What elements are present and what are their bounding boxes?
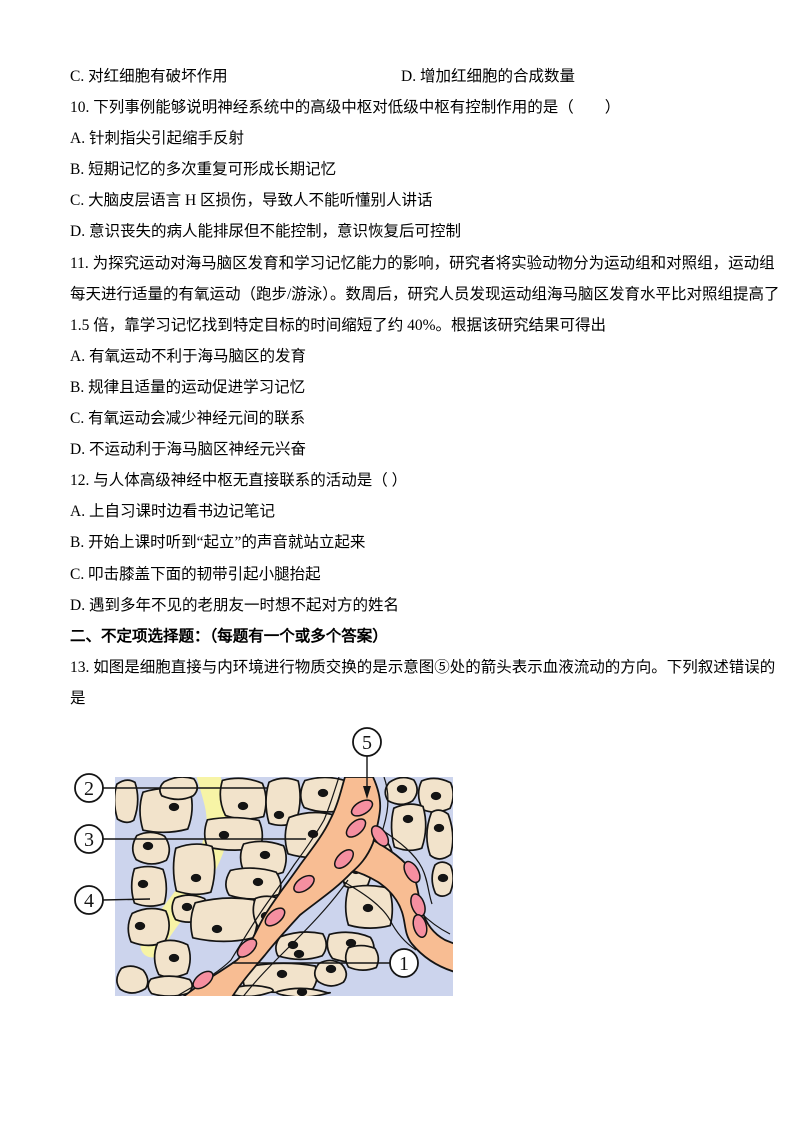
tissue-cell [128,909,169,946]
cell-nucleus [135,922,145,930]
text-line-9: 1.5 倍，靠学习记忆找到特定目标的时间缩短了约 40%。根据该研究结果可得出 [70,310,740,341]
cell-nucleus [274,811,284,819]
label-2: 2 [84,778,94,800]
cell-environment-diagram: 2 3 4 1 5 [60,720,500,1020]
text-line-7: 11. 为探究运动对海马脑区发育和学习记忆能力的影响，研究者将实验动物分为运动组… [70,248,740,279]
text-line-4: B. 短期记忆的多次重复可形成长期记忆 [70,154,740,185]
cell-nucleus [318,789,328,797]
option-d: D. 增加红细胞的合成数量 [401,61,575,92]
tissue-cell [148,976,192,996]
tissue-cell [346,946,379,971]
cell-nucleus [169,803,179,811]
cell-nucleus [182,903,192,911]
text-line-16: B. 开始上课时听到“起立”的声音就站立起来 [70,527,740,558]
tissue-cell [117,966,148,993]
cell-nucleus [253,878,263,886]
tissue-cell [392,804,426,850]
cell-nucleus [212,925,222,933]
cell-nucleus [169,954,179,962]
tissue-cell [132,867,167,907]
tissue-cell [220,778,266,819]
tissue-cell [191,898,257,941]
question-text-block: C. 对红细胞有破坏作用D. 增加红细胞的合成数量10. 下列事例能够说明神经系… [70,61,740,714]
label-4: 4 [84,890,94,912]
cell-nucleus [277,970,287,978]
cell-nucleus [438,874,448,882]
tissue-cell [427,810,453,859]
text-line-10: A. 有氧运动不利于海马脑区的发育 [70,341,740,372]
label-line-4 [103,899,150,900]
cell-nucleus [326,965,336,973]
cell-nucleus [363,904,373,912]
text-line-19: 二、不定项选择题：（每题有一个或多个答案） [70,621,740,652]
cell-nucleus [219,831,229,839]
text-line-5: C. 大脑皮层语言 H 区损伤，导致人不能听懂别人讲话 [70,185,740,216]
text-line-14: 12. 与人体高级神经中枢无直接联系的活动是（ ） [70,465,740,496]
cell-nucleus [294,950,304,958]
exam-page: { "document": { "lines": [ {"left":"C. 对… [0,0,794,1123]
cell-nucleus [434,824,444,832]
cell-nucleus [138,880,148,888]
label-3: 3 [84,829,94,851]
option-c: C. 对红细胞有破坏作用 [70,68,228,85]
cell-nucleus [288,941,298,949]
diagram-svg: 2 3 4 1 5 [60,720,500,1020]
cell-nucleus [403,815,413,823]
cell-nucleus [260,851,270,859]
tissue-cell [174,844,215,894]
text-line-8: 每天进行适量的有氧运动（跑步/游泳）。数周后，研究人员发现运动组海马脑区发育水平… [70,279,740,310]
cell-nucleus [191,874,201,882]
cell-nucleus [431,792,441,800]
cell-nucleus [238,802,248,810]
text-line-2: 10. 下列事例能够说明神经系统中的高级中枢对低级中枢有控制作用的是（ ） [70,92,740,123]
text-line-3: A. 针刺指尖引起缩手反射 [70,123,740,154]
text-line-12: C. 有氧运动会减少神经元间的联系 [70,403,740,434]
text-line-21: 是 [70,683,740,714]
tissue-cell [315,960,347,986]
text-line-18: D. 遇到多年不见的老朋友一时想不起对方的姓名 [70,590,740,621]
text-line-6: D. 意识丧失的病人能排尿但不能控制，意识恢复后可控制 [70,216,740,247]
text-line-1: C. 对红细胞有破坏作用D. 增加红细胞的合成数量 [70,61,740,92]
tissue-cell [115,780,138,822]
cell-nucleus [297,988,307,996]
text-line-11: B. 规律且适量的运动促进学习记忆 [70,372,740,403]
text-line-15: A. 上自习课时边看书边记笔记 [70,496,740,527]
text-line-20: 13. 如图是细胞直接与内环境进行物质交换的是示意图⑤处的箭头表示血液流动的方向… [70,652,740,683]
text-line-17: C. 叩击膝盖下面的韧带引起小腿抬起 [70,559,740,590]
cell-nucleus [143,842,153,850]
text-line-13: D. 不运动利于海马脑区神经元兴奋 [70,434,740,465]
label-5: 5 [362,732,372,754]
label-1: 1 [399,953,409,975]
cell-nucleus [397,785,407,793]
